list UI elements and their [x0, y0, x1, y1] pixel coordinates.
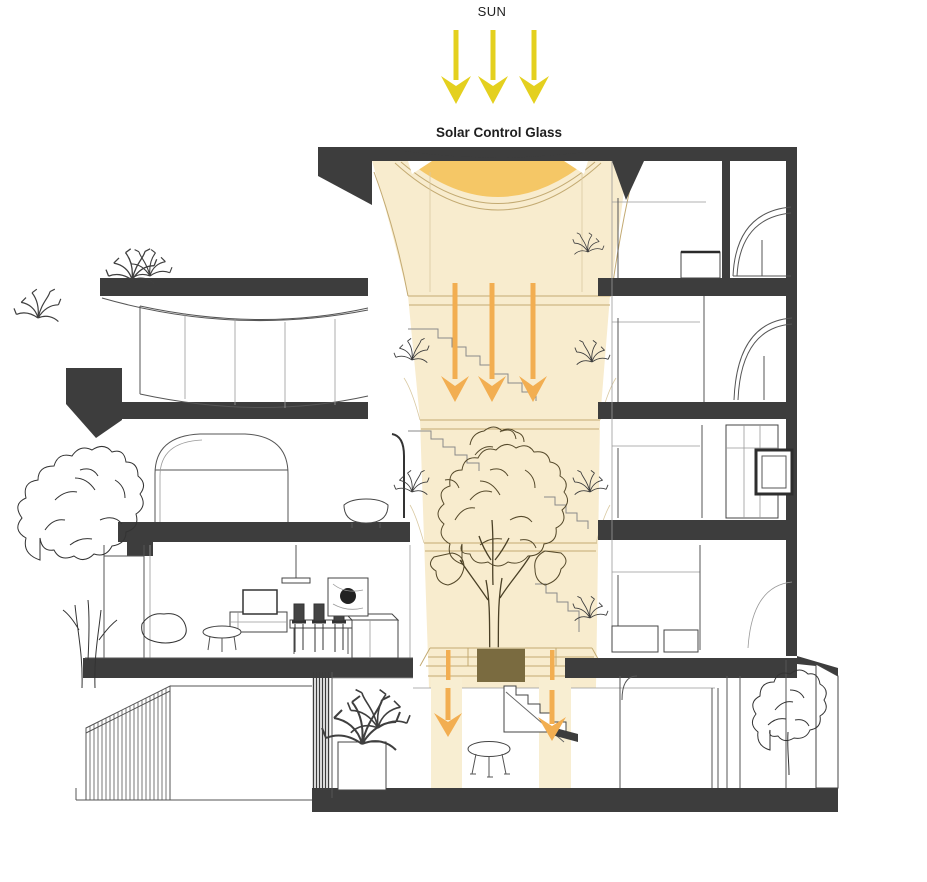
upper-room: [681, 207, 791, 278]
courtyard-planter: [322, 690, 410, 790]
left-wing: [85, 298, 413, 658]
floor-slab: [598, 520, 797, 540]
green-wall: [312, 672, 330, 788]
ground-slab: [565, 658, 797, 678]
solar-section-diagram: SUN Solar Control Glass: [0, 0, 927, 882]
balcony-wedge: [66, 368, 122, 438]
kitchen-island: [346, 614, 398, 658]
solar-control-glass-label: Solar Control Glass: [436, 125, 562, 140]
pendant-lamp: [282, 578, 310, 583]
arched-window: [733, 207, 791, 276]
atrium-lightwell: [372, 161, 632, 688]
courtyard-tree: [752, 670, 826, 775]
sun-ray-arrow-icon: [478, 30, 508, 104]
tree-planter: [477, 648, 525, 682]
foundation-slab: [312, 788, 838, 812]
bathtub: [344, 499, 388, 523]
stool: [468, 742, 510, 778]
section-drawing: SUN Solar Control Glass: [0, 0, 927, 882]
arched-window: [734, 318, 792, 400]
floor-slab: [118, 402, 368, 419]
cabinet: [664, 630, 698, 652]
sun-ray-arrows: [441, 30, 549, 104]
sun-label: SUN: [478, 4, 507, 19]
floor-slab: [118, 522, 410, 542]
floor-slab: [598, 402, 797, 419]
arch-niche: [392, 434, 404, 518]
right-wall: [786, 147, 797, 656]
cabinet: [612, 626, 658, 652]
coffee-table: [203, 626, 241, 638]
wall-artwork: [328, 578, 368, 616]
sun-ray-arrow-icon: [441, 30, 471, 104]
sun-ray-arrow-icon: [519, 30, 549, 104]
exterior-tree: [18, 446, 186, 688]
ground-slab: [83, 658, 413, 678]
tv: [243, 590, 277, 614]
floor-slab: [100, 278, 368, 296]
floor-slab: [598, 278, 797, 296]
slatted-fence: [86, 686, 170, 800]
partition-wall: [722, 161, 730, 278]
